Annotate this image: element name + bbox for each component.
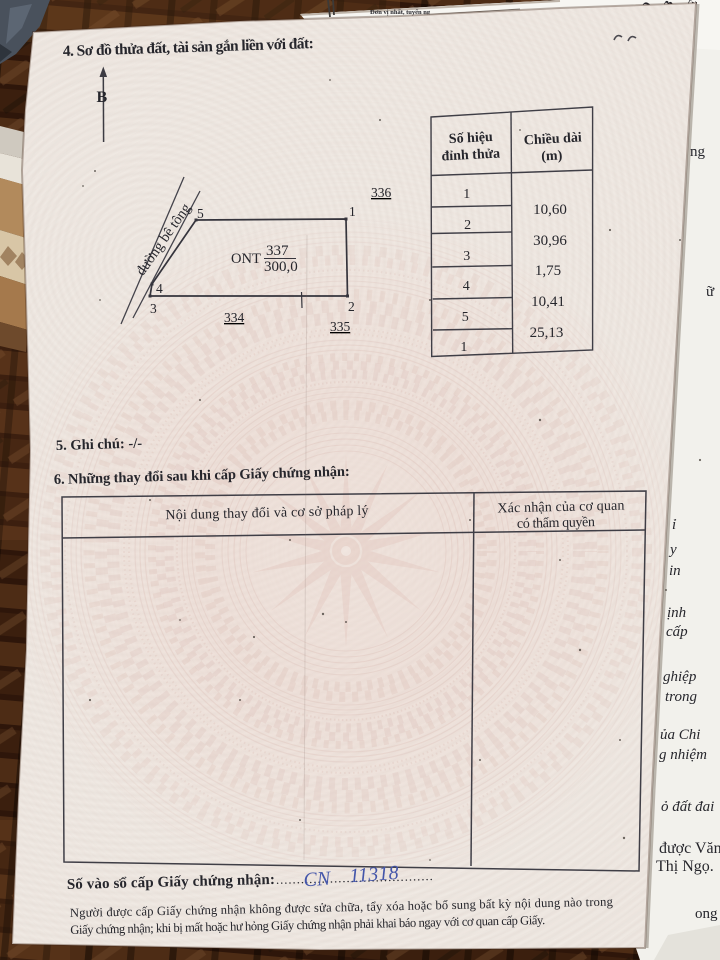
- svg-text:5: 5: [197, 206, 204, 221]
- svg-text:5. Ghi chú: -/-: 5. Ghi chú: -/-: [56, 436, 143, 454]
- svg-text:đỉnh thửa: đỉnh thửa: [441, 146, 500, 164]
- svg-text:5: 5: [462, 310, 469, 325]
- svg-text:10,41: 10,41: [531, 294, 565, 310]
- svg-text:cấp: cấp: [666, 624, 688, 640]
- svg-text:ONT: ONT: [231, 251, 261, 267]
- svg-text:4: 4: [463, 279, 470, 294]
- svg-text:336: 336: [371, 185, 392, 200]
- svg-text:300,0: 300,0: [264, 259, 298, 275]
- svg-text:có thẩm quyền: có thẩm quyền: [517, 515, 595, 532]
- svg-text:B: B: [97, 89, 108, 106]
- svg-text:25,13: 25,13: [530, 325, 564, 341]
- svg-text:Xác nhận của cơ quan: Xác nhận của cơ quan: [497, 499, 624, 517]
- svg-text:ữ: ữ: [706, 284, 715, 300]
- svg-text:3: 3: [463, 249, 470, 264]
- svg-text:11318: 11318: [349, 862, 400, 887]
- svg-text:ủa Chi: ủa Chi: [660, 727, 700, 743]
- svg-text:337: 337: [266, 243, 289, 259]
- svg-text:y: y: [668, 542, 677, 558]
- svg-text:ỏ đất đai: ỏ đất đai: [661, 799, 714, 815]
- svg-text:Số hiệu: Số hiệu: [448, 130, 493, 147]
- svg-text:1: 1: [463, 187, 470, 202]
- svg-text:ong: ong: [695, 906, 718, 922]
- svg-text:30,96: 30,96: [533, 233, 567, 249]
- svg-text:1: 1: [460, 340, 467, 355]
- svg-text:Chiều dài: Chiều dài: [523, 130, 582, 148]
- svg-text:được Văn: được Văn: [659, 840, 720, 857]
- svg-text:3: 3: [150, 301, 157, 316]
- svg-text:trong: trong: [665, 689, 697, 705]
- svg-text:CN: CN: [303, 867, 333, 891]
- svg-text:2: 2: [464, 218, 471, 233]
- svg-text:334: 334: [224, 310, 245, 325]
- svg-text:in: in: [669, 563, 681, 579]
- svg-text:335: 335: [330, 319, 351, 334]
- svg-text:10,60: 10,60: [533, 202, 567, 218]
- svg-text:ng: ng: [690, 144, 706, 160]
- svg-text:ghiệp: ghiệp: [663, 669, 697, 685]
- svg-text:1: 1: [349, 204, 356, 219]
- svg-text:1,75: 1,75: [535, 263, 561, 279]
- svg-text:g nhiệm: g nhiệm: [659, 747, 707, 763]
- svg-text:(m): (m): [541, 148, 563, 164]
- svg-text:2: 2: [348, 299, 355, 314]
- svg-text:4: 4: [156, 281, 163, 296]
- svg-text:ịnh: ịnh: [667, 605, 686, 621]
- svg-text:Thị Ngọ.: Thị Ngọ.: [656, 858, 714, 875]
